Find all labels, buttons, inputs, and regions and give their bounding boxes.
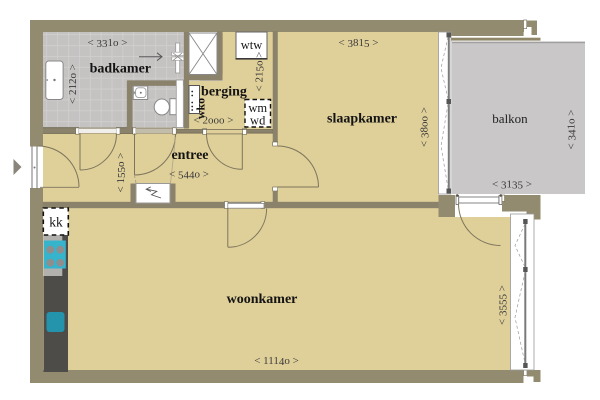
svg-text:wtw: wtw	[241, 38, 263, 52]
svg-text:< 341o >: < 341o >	[566, 110, 579, 150]
svg-text:< 1114o >: < 1114o >	[254, 355, 299, 368]
svg-text:< 215o >: < 215o >	[254, 52, 267, 92]
svg-text:< 2ooo >: < 2ooo >	[194, 115, 234, 127]
svg-text:woonkamer: woonkamer	[227, 292, 298, 307]
svg-text:< 3555 >: < 3555 >	[497, 285, 510, 325]
svg-text:badkamer: badkamer	[90, 62, 151, 77]
svg-text:slaapkamer: slaapkamer	[327, 112, 397, 127]
svg-text:< 212o >: < 212o >	[67, 64, 79, 104]
svg-text:< 3135 >: < 3135 >	[492, 179, 532, 192]
svg-text:entree: entree	[171, 148, 208, 163]
svg-text:< 331o >: < 331o >	[88, 37, 128, 50]
svg-text:kk: kk	[49, 215, 63, 230]
svg-text:< 155o >: < 155o >	[115, 153, 128, 193]
svg-text:balkon: balkon	[492, 111, 528, 126]
svg-text:< 3815 >: < 3815 >	[339, 37, 379, 50]
svg-text:< 544o >: < 544o >	[169, 169, 209, 182]
svg-text:< 38oo >: < 38oo >	[419, 107, 432, 147]
svg-text:berging: berging	[201, 85, 247, 100]
svg-text:wd: wd	[250, 114, 266, 128]
